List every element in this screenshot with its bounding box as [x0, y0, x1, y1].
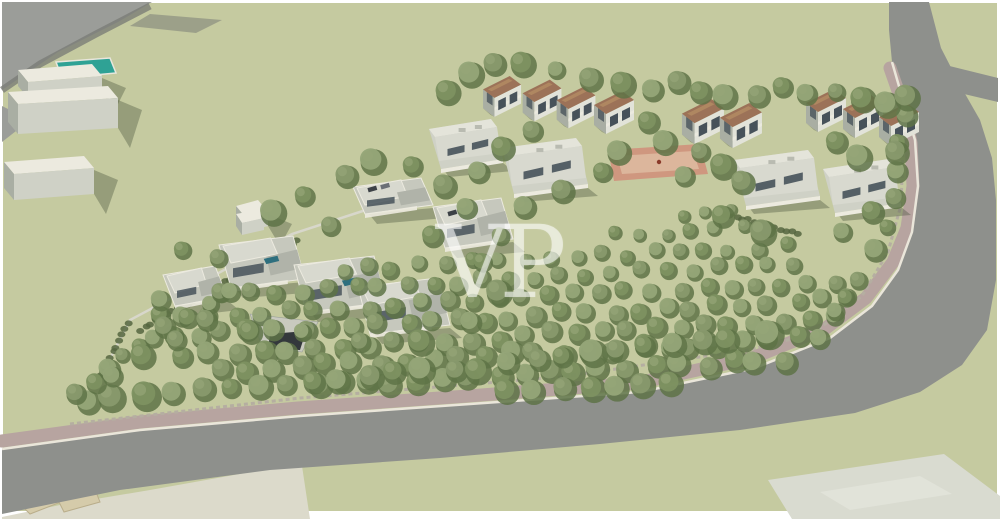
architectural-rendering	[0, 0, 1000, 521]
